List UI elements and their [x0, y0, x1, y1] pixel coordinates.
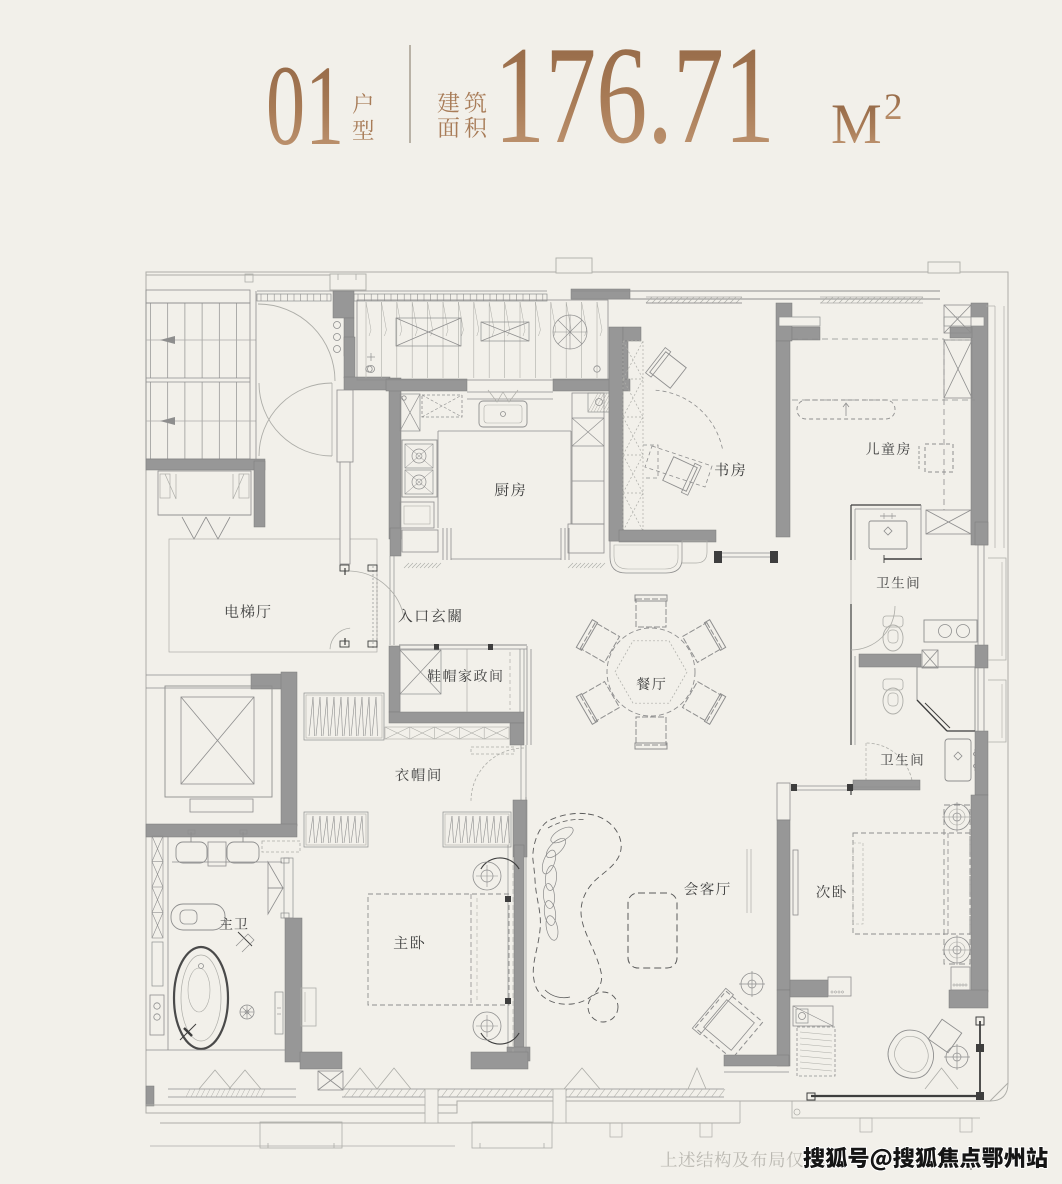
- svg-text:M: M: [831, 93, 882, 156]
- svg-text:176.71: 176.71: [494, 17, 775, 172]
- svg-text:01: 01: [266, 42, 344, 169]
- svg-text:2: 2: [884, 87, 903, 128]
